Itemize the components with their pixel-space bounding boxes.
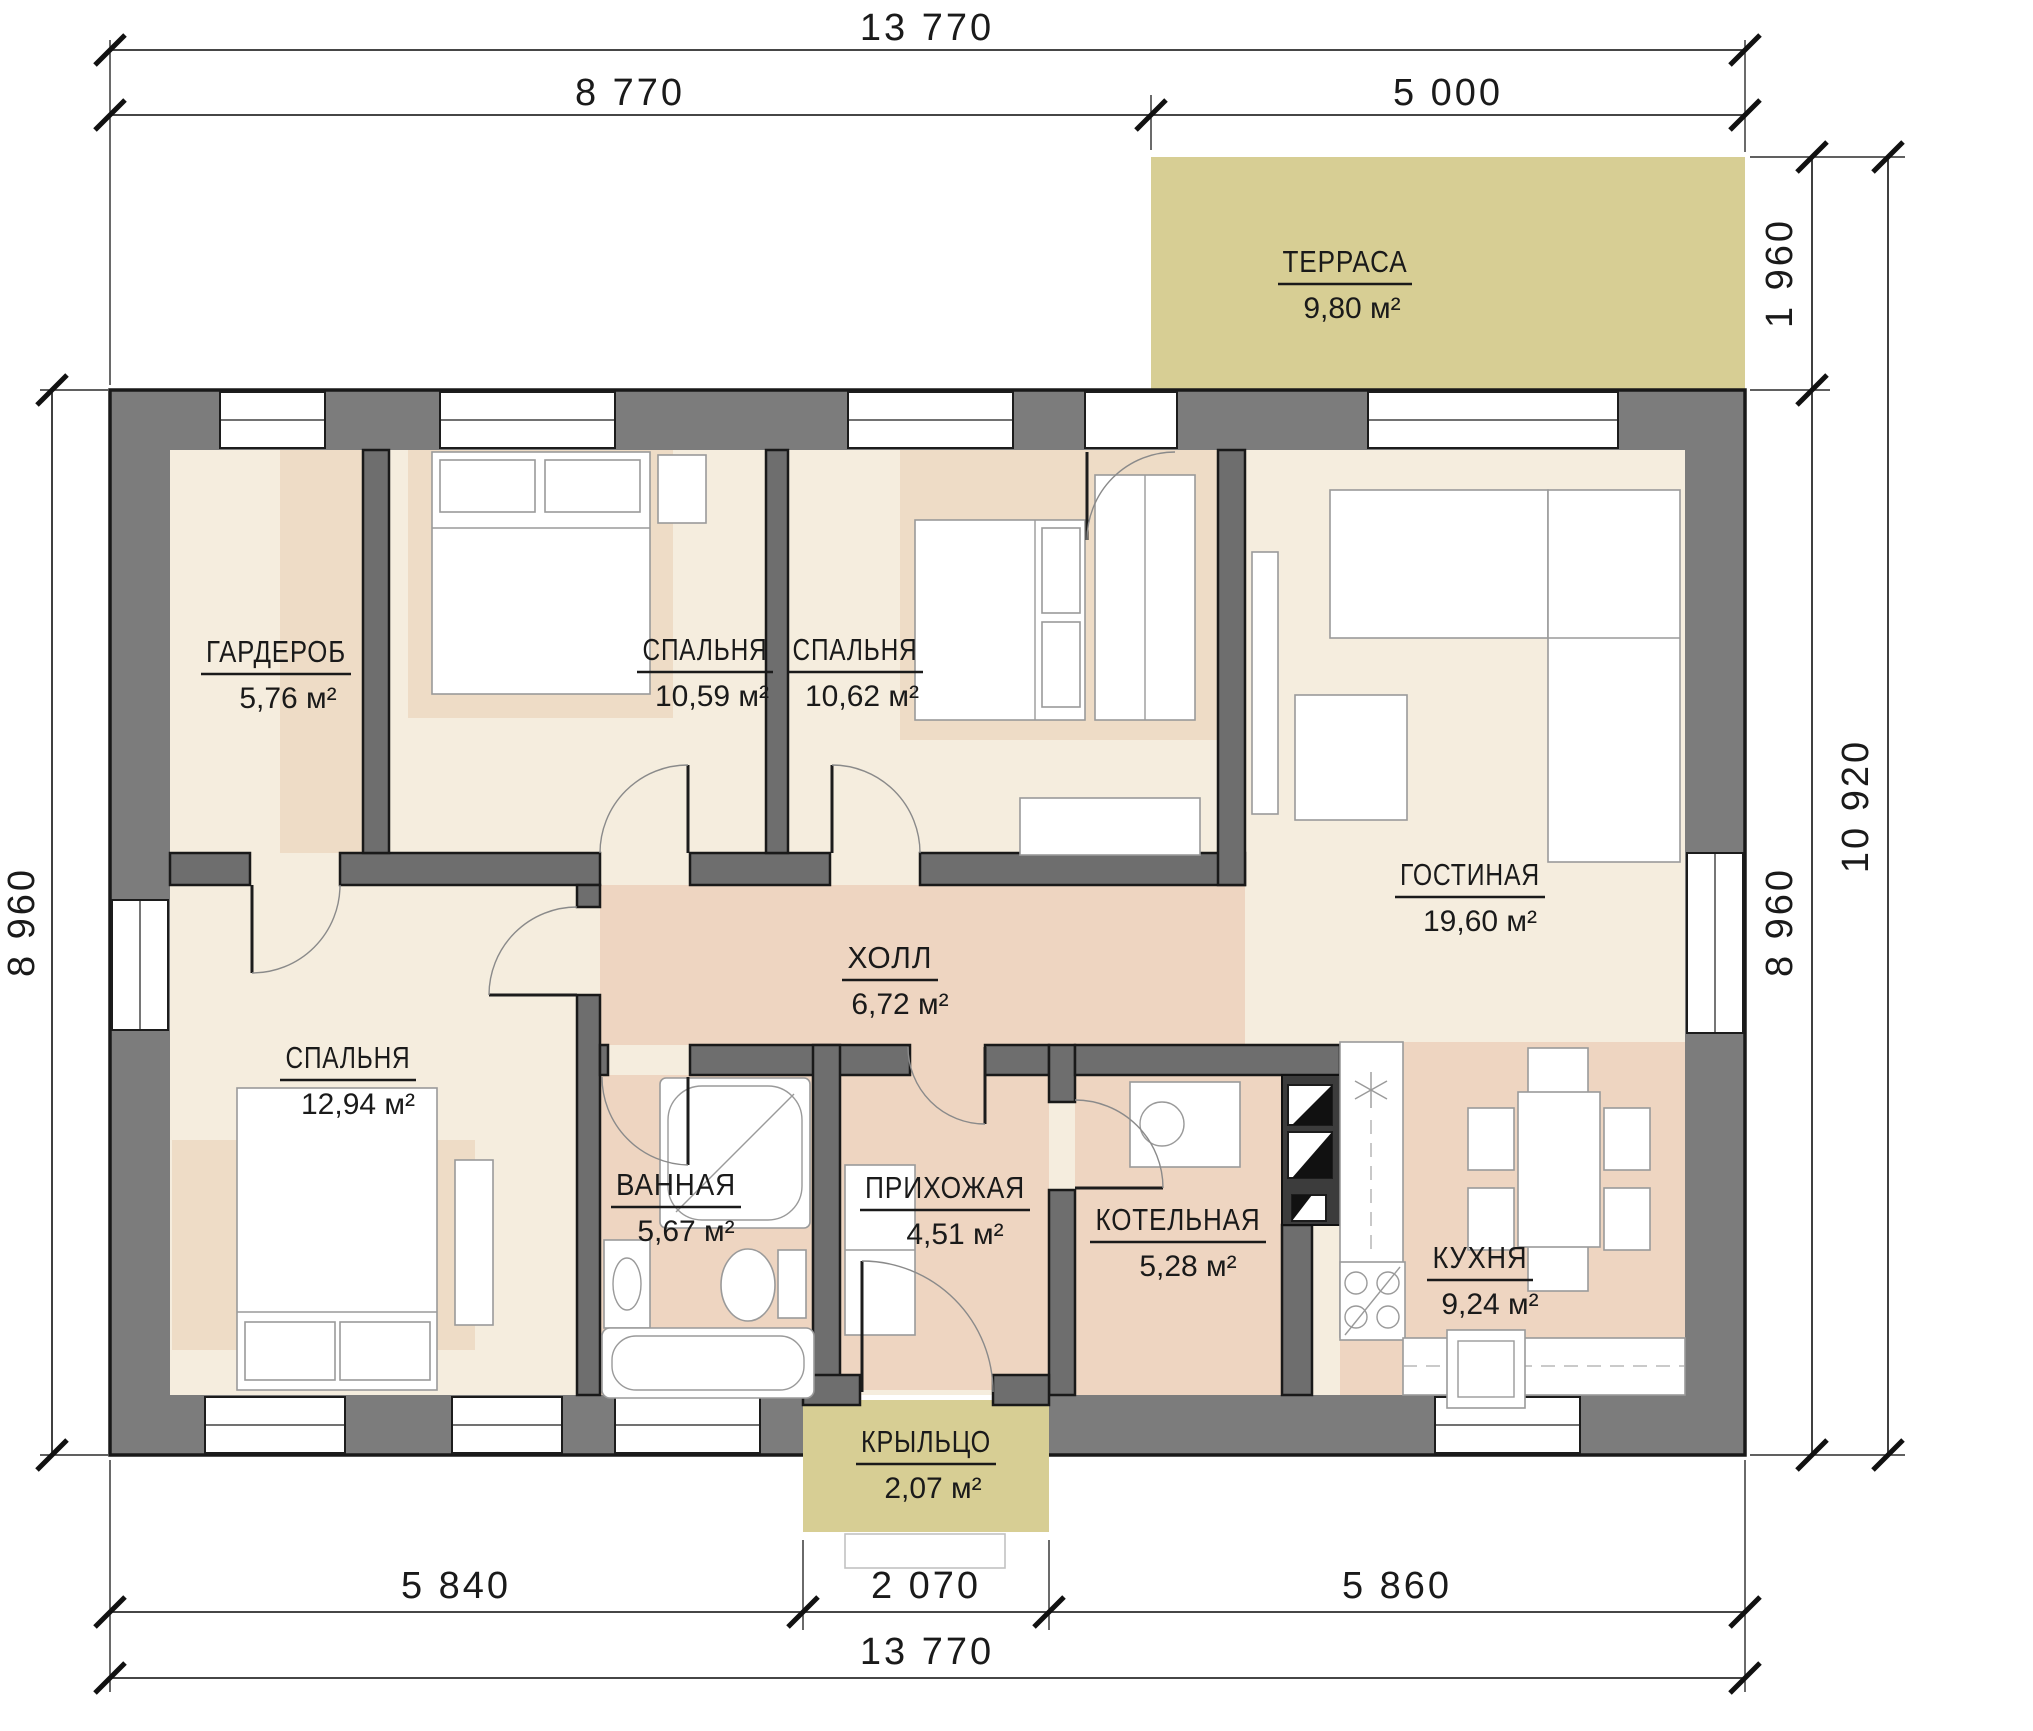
room-label-bedroom3: СПАЛЬНЯ 12,94 м² xyxy=(280,1040,416,1121)
room-label-bedroom1: СПАЛЬНЯ 10,59 м² xyxy=(637,632,773,713)
room-label-bedroom2: СПАЛЬНЯ 10,62 м² xyxy=(787,632,923,713)
dim-bottom-right-text: 5 860 xyxy=(1342,1565,1452,1607)
window-bathroom xyxy=(615,1397,760,1453)
shower-icon xyxy=(660,1078,810,1228)
terrace-area: 9,80 м² xyxy=(1303,292,1400,325)
entry-name: ПРИХОЖАЯ xyxy=(865,1170,1025,1205)
porch-step xyxy=(845,1534,1005,1568)
dim-top-total: 13 770 xyxy=(95,7,1760,65)
floor-plan-page: ТЕРРАСА 9,80 м² ГАРДЕРОБ 5,76 м² СПАЛЬНЯ… xyxy=(0,0,2033,1731)
dim-bottom-total: 13 770 xyxy=(95,1631,1760,1693)
dim-top-split: 8 770 5 000 xyxy=(95,72,1760,130)
window-bottom-bedroom3-2 xyxy=(452,1397,562,1453)
washer-icon xyxy=(1130,1082,1240,1167)
entry-area: 4,51 м² xyxy=(906,1218,1003,1251)
window-left-bedroom3 xyxy=(112,900,168,1030)
window-garderob xyxy=(220,392,325,448)
kitchen-name: КУХНЯ xyxy=(1433,1240,1528,1275)
boiler-name: КОТЕЛЬНАЯ xyxy=(1096,1202,1261,1237)
porch-name: КРЫЛЬЦО xyxy=(861,1424,991,1459)
dim-right-total-text: 10 920 xyxy=(1835,739,1877,873)
window-bedroom2 xyxy=(848,392,1013,448)
bedroom3-name: СПАЛЬНЯ xyxy=(286,1040,411,1075)
dim-left-house: 8 960 xyxy=(1,375,67,1470)
living-name: ГОСТИНАЯ xyxy=(1400,857,1540,892)
dim-bottom-split: 5 840 2 070 5 860 xyxy=(95,1565,1760,1627)
bathtub-icon xyxy=(602,1328,814,1398)
porch-area: 2,07 м² xyxy=(884,1472,981,1505)
dim-top-total-text: 13 770 xyxy=(860,7,994,49)
dim-right-house-text: 8 960 xyxy=(1759,867,1801,977)
dim-right-total: 10 920 xyxy=(1835,142,1903,1470)
bedroom1-name: СПАЛЬНЯ xyxy=(643,632,768,667)
living-area: 19,60 м² xyxy=(1423,905,1537,938)
dim-right-inner: 1 960 8 960 xyxy=(1759,142,1827,1470)
terrace-name: ТЕРРАСА xyxy=(1283,244,1408,279)
hall-name: ХОЛЛ xyxy=(848,940,933,975)
stove-icon xyxy=(1340,1262,1405,1340)
room-label-kitchen: КУХНЯ 9,24 м² xyxy=(1427,1240,1539,1321)
window-bottom-bedroom3 xyxy=(205,1397,345,1453)
window-living-right xyxy=(1687,853,1743,1033)
bedroom1-area: 10,59 м² xyxy=(655,680,769,713)
bedroom3-area: 12,94 м² xyxy=(301,1088,415,1121)
dim-bottom-left-text: 5 840 xyxy=(401,1565,511,1607)
electrical-panel-icon xyxy=(1288,1085,1332,1221)
sink-bathroom-icon xyxy=(604,1240,650,1328)
terrace-floor xyxy=(1151,157,1745,390)
dim-top-left-text: 8 770 xyxy=(575,72,685,114)
kitchen-area: 9,24 м² xyxy=(1441,1288,1538,1321)
bedroom2-area: 10,62 м² xyxy=(805,680,919,713)
dim-bottom-porch-text: 2 070 xyxy=(871,1565,981,1607)
hall-area: 6,72 м² xyxy=(851,988,948,1021)
terrace-door-opening xyxy=(1085,392,1177,448)
boiler-area: 5,28 м² xyxy=(1139,1250,1236,1283)
dim-left-house-text: 8 960 xyxy=(1,867,43,977)
window-living-terrace xyxy=(1368,392,1618,448)
toilet-icon xyxy=(721,1249,806,1321)
floor-plan-drawing: ТЕРРАСА 9,80 м² ГАРДЕРОБ 5,76 м² СПАЛЬНЯ… xyxy=(0,0,2033,1731)
bedroom2-name: СПАЛЬНЯ xyxy=(793,632,918,667)
dim-right-terrace-text: 1 960 xyxy=(1759,218,1801,328)
bathroom-area: 5,67 м² xyxy=(637,1215,734,1248)
dim-bottom-total-text: 13 770 xyxy=(860,1631,994,1673)
bathroom-name: ВАННАЯ xyxy=(616,1167,736,1202)
window-bedroom1 xyxy=(440,392,615,448)
garderob-area: 5,76 м² xyxy=(239,682,336,715)
dim-top-right-text: 5 000 xyxy=(1393,72,1503,114)
garderob-name: ГАРДЕРОБ xyxy=(206,634,346,669)
porch-floor xyxy=(803,1400,1049,1532)
